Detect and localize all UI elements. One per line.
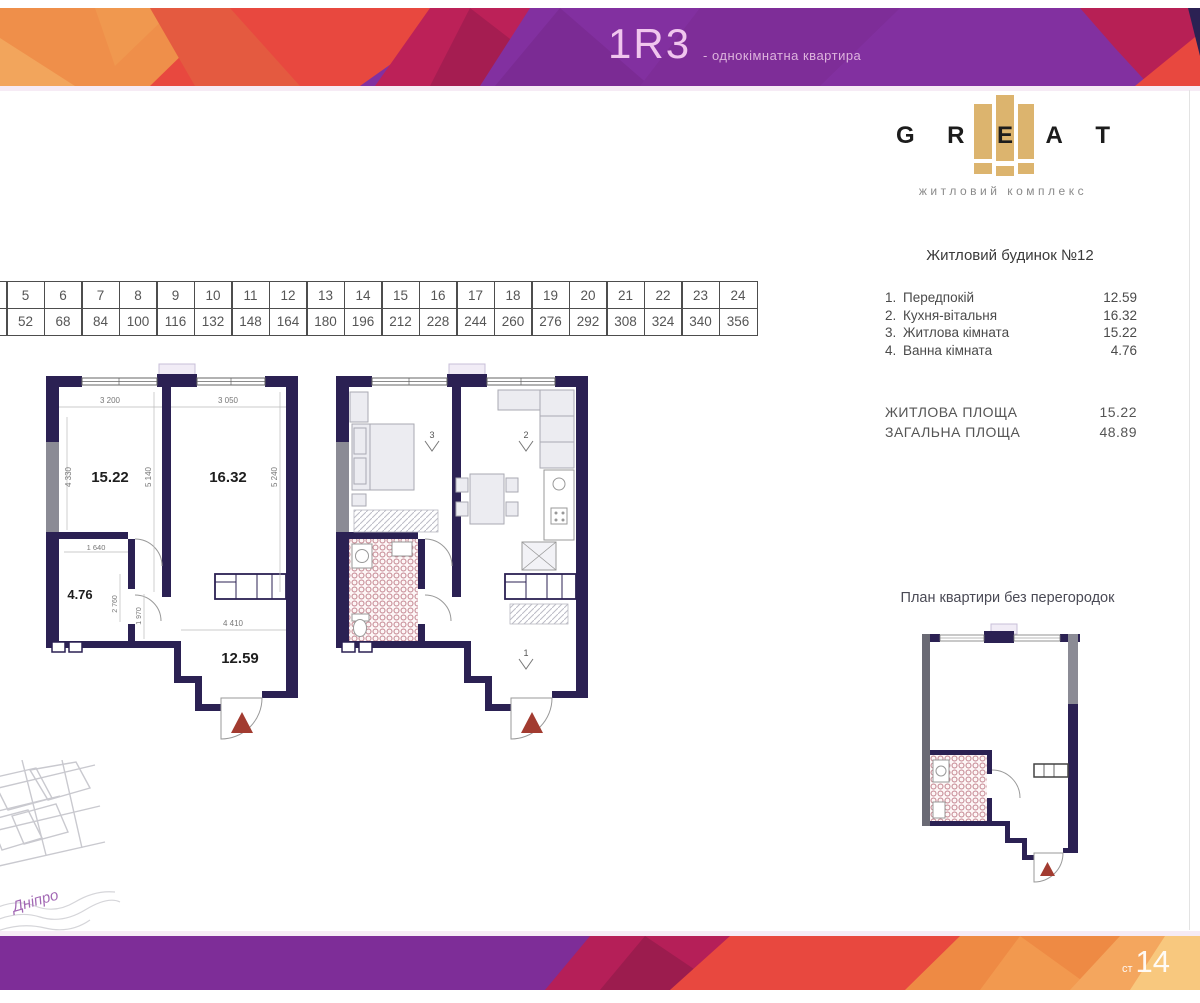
apartment-number-cell: 196 — [344, 308, 383, 336]
logo-tower-base-center — [996, 166, 1014, 176]
kitchen-counter — [544, 470, 574, 540]
svg-text:4.76: 4.76 — [67, 587, 92, 602]
page-prefix: ст — [1122, 963, 1133, 975]
right-wall-upper — [1068, 634, 1078, 704]
hall-radiator — [510, 604, 568, 624]
apartment-number-cell: 260 — [494, 308, 533, 336]
svg-text:3 200: 3 200 — [100, 396, 121, 405]
area-totals: ЖИТЛОВА ПЛОЩА 15.22 ЗАГАЛЬНА ПЛОЩА 48.89 — [885, 402, 1137, 442]
plan3-walls — [922, 631, 1080, 860]
apartment-number-cell: 132 — [194, 308, 233, 336]
floor-number-cell: 11 — [231, 281, 270, 309]
svg-text:5 140: 5 140 — [144, 466, 153, 487]
apartment-number-cell: 340 — [681, 308, 720, 336]
room-list-item: 4. Ванна кімната 4.76 — [885, 342, 1137, 360]
floor-number-cell: 14 — [344, 281, 383, 309]
balcony-protrusion — [449, 364, 485, 375]
room-name: Ванна кімната — [903, 342, 1111, 360]
floors-table-column: 19 276 — [531, 281, 570, 336]
svg-text:3: 3 — [429, 430, 434, 440]
bedroom-furniture — [350, 392, 414, 506]
dimension-lines — [59, 392, 286, 639]
room-name: Передпокій — [903, 289, 1103, 307]
total-label: ЖИТЛОВА ПЛОЩА — [885, 402, 1018, 422]
apartment-number-cell: 292 — [569, 308, 608, 336]
total-value: 15.22 — [1099, 402, 1137, 422]
floor-number-cell: 8 — [119, 281, 158, 309]
facade-wall — [336, 442, 349, 532]
river-label: Дніпро — [8, 887, 60, 917]
room-list-item: 3. Житлова кімната 15.22 — [885, 324, 1137, 342]
logo-letter: A — [1045, 122, 1062, 150]
floor-number-cell: 24 — [719, 281, 758, 309]
svg-text:5 240: 5 240 — [270, 466, 279, 487]
kitchen-unit — [1034, 764, 1068, 777]
floor-number-cell: 13 — [306, 281, 345, 309]
floor-number-cell: 7 — [81, 281, 120, 309]
room-number: 2. — [885, 307, 903, 325]
floor-number-cell: 15 — [381, 281, 420, 309]
bottom-banner-graphic — [0, 936, 1200, 990]
bathroom-door-arc — [992, 770, 1020, 798]
floors-table-column: 21 308 — [606, 281, 645, 336]
facade-wall — [46, 442, 59, 532]
floors-table-column: 7 84 — [81, 281, 120, 336]
divider-strip-top — [0, 86, 1200, 91]
svg-text:3 050: 3 050 — [218, 396, 239, 405]
apartment-number-cell: 148 — [231, 308, 270, 336]
logo-letter: T — [1095, 122, 1110, 150]
floors-table-column: 12 164 — [269, 281, 308, 336]
svg-text:15.22: 15.22 — [91, 469, 129, 486]
total-label: ЗАГАЛЬНА ПЛОЩА — [885, 422, 1020, 442]
divider-strip-bottom — [0, 931, 1200, 936]
apartment-number-cell: 52 — [6, 308, 45, 336]
floors-table-column: 14 196 — [344, 281, 383, 336]
apartment-number-cell: 356 — [719, 308, 758, 336]
floors-table-column: 6 68 — [44, 281, 83, 336]
floors-table-column: 22 324 — [644, 281, 683, 336]
apartment-number-cell: 100 — [119, 308, 158, 336]
floors-table: 5 52 6 68 7 84 8 100 9 116 10 132 11 148… — [0, 281, 758, 336]
floor-number-cell: 19 — [531, 281, 570, 309]
page-number: ст 14 — [1030, 944, 1170, 980]
svg-text:1 970: 1 970 — [136, 607, 143, 625]
room-area: 12.59 — [1103, 289, 1137, 307]
door-arcs — [425, 539, 452, 621]
logo-tower-base-left — [974, 163, 992, 174]
page-edge-line — [1189, 90, 1190, 930]
apartment-number-cell: 164 — [269, 308, 308, 336]
left-wall — [922, 634, 930, 826]
floor-number-cell: 5 — [6, 281, 45, 309]
floors-table-column: 15 212 — [381, 281, 420, 336]
floor-number-cell: 20 — [569, 281, 608, 309]
logo-tower-base-right — [1018, 163, 1034, 174]
floors-table-column: 16 228 — [419, 281, 458, 336]
svg-text:4 410: 4 410 — [223, 619, 244, 628]
room-list-item: 1. Передпокій 12.59 — [885, 289, 1137, 307]
svg-text:12.59: 12.59 — [221, 650, 259, 667]
apartment-number-cell: 244 — [456, 308, 495, 336]
floor-plan-dimensioned: 3 200 3 050 4 330 5 140 5 240 1 640 2 76… — [40, 362, 302, 777]
apartment-number-cell: 116 — [156, 308, 195, 336]
logo-wordmark: G R E A T — [896, 122, 1110, 150]
apartment-number-cell: 324 — [644, 308, 683, 336]
svg-text:2: 2 — [523, 430, 528, 440]
total-value: 48.89 — [1099, 422, 1137, 442]
room-area: 16.32 — [1103, 307, 1137, 325]
svg-text:1 640: 1 640 — [87, 543, 106, 552]
bedroom-radiator — [354, 510, 438, 532]
floors-table-column: 13 180 — [306, 281, 345, 336]
floors-table-column: 5 52 — [6, 281, 45, 336]
counter-outline — [505, 574, 576, 599]
apartment-number-cell: 180 — [306, 308, 345, 336]
plan-code: 1R3 — [608, 20, 691, 68]
kitchen-counter-outline — [215, 574, 286, 599]
room-marker-kitchen: 2 — [519, 430, 533, 451]
no-partitions-title: План квартири без перегородок — [880, 590, 1135, 606]
floors-table-column: 17 244 — [456, 281, 495, 336]
street-grid — [0, 760, 105, 868]
room-marker-hall: 1 — [519, 648, 533, 669]
room-name: Житлова кімната — [903, 324, 1103, 342]
apartment-number-cell: 212 — [381, 308, 420, 336]
floor-number-cell: 22 — [644, 281, 683, 309]
logo-tagline: житловий комплекс — [894, 184, 1112, 198]
floor-number-cell: 16 — [419, 281, 458, 309]
floors-table-column: 9 116 — [156, 281, 195, 336]
floor-number-cell: 18 — [494, 281, 533, 309]
floor-number-cell: 9 — [156, 281, 195, 309]
balcony-protrusion — [159, 364, 195, 375]
logo-letter: E — [997, 122, 1013, 150]
room-list-item: 2. Кухня-вітальня 16.32 — [885, 307, 1137, 325]
floors-table-column: 8 100 — [119, 281, 158, 336]
apartment-number-cell: 228 — [419, 308, 458, 336]
floors-table-column: 24 356 — [719, 281, 758, 336]
svg-text:16.32: 16.32 — [209, 469, 247, 486]
logo-letter: G — [896, 122, 915, 150]
floor-number-cell: 23 — [681, 281, 720, 309]
floors-table-column: 10 132 — [194, 281, 233, 336]
plan-subtitle: - однокімнатна квартира — [703, 48, 861, 63]
svg-text:1: 1 — [523, 648, 528, 658]
svg-text:4 330: 4 330 — [64, 466, 73, 487]
floor-number-cell: 10 — [194, 281, 233, 309]
building-title: Житловий будинок №12 — [885, 247, 1135, 264]
floors-table-column: 20 292 — [569, 281, 608, 336]
floor-plan-no-partitions — [916, 622, 1094, 907]
room-area: 15.22 — [1103, 324, 1137, 342]
apartment-number-cell: 68 — [44, 308, 83, 336]
room-number: 3. — [885, 324, 903, 342]
room-number: 4. — [885, 342, 903, 360]
page-value: 14 — [1136, 944, 1170, 980]
site-map-sketch: Дніпро — [0, 760, 140, 945]
floor-number-cell: 6 — [44, 281, 83, 309]
svg-text:2 760: 2 760 — [112, 595, 119, 613]
plan1-walls — [46, 374, 298, 711]
logo-letter: R — [947, 122, 964, 150]
apartment-number-cell: 84 — [81, 308, 120, 336]
room-list: 1. Передпокій 12.59 2. Кухня-вітальня 16… — [885, 289, 1137, 359]
floor-number-cell: 21 — [606, 281, 645, 309]
apartment-number-cell: 276 — [531, 308, 570, 336]
floor-plan-furnished: 3 2 1 — [330, 362, 592, 777]
floors-table-column: 11 148 — [231, 281, 270, 336]
total-row: ЗАГАЛЬНА ПЛОЩА 48.89 — [885, 422, 1137, 442]
apartment-number-cell: 308 — [606, 308, 645, 336]
room-area: 4.76 — [1111, 342, 1137, 360]
room-marker-bedroom: 3 — [425, 430, 439, 451]
top-banner-graphic — [0, 8, 1200, 86]
floors-table-column: 23 340 — [681, 281, 720, 336]
floors-table-column: 18 260 — [494, 281, 533, 336]
room-name: Кухня-вітальня — [903, 307, 1103, 325]
floor-number-cell: 17 — [456, 281, 495, 309]
floor-number-cell: 12 — [269, 281, 308, 309]
room-number: 1. — [885, 289, 903, 307]
total-row: ЖИТЛОВА ПЛОЩА 15.22 — [885, 402, 1137, 422]
